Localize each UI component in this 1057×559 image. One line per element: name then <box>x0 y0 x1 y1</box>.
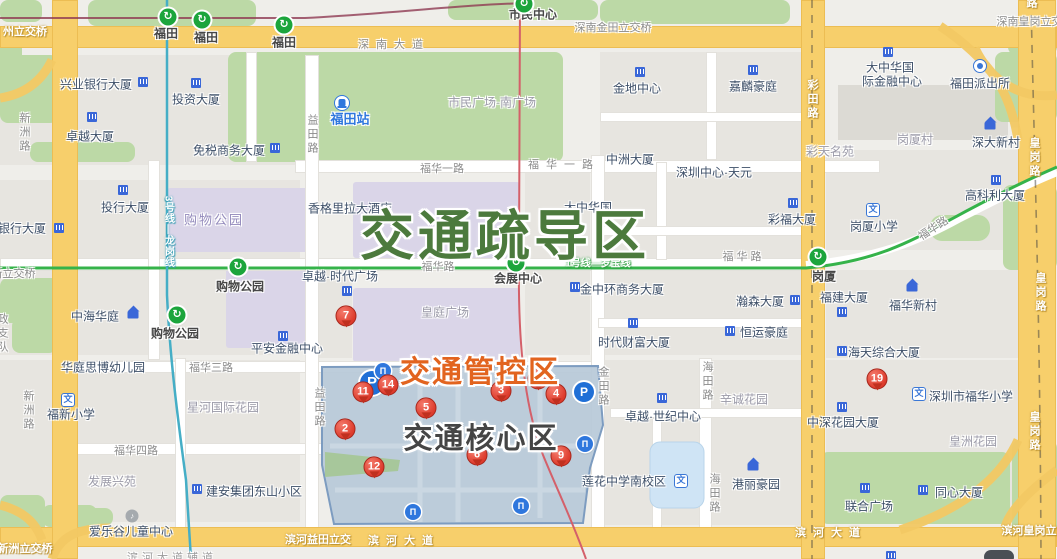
building-icon <box>860 483 870 493</box>
map-pin-7[interactable]: 7 <box>336 305 357 326</box>
vehicle-icon <box>984 550 1014 559</box>
parking-icon[interactable]: P <box>574 382 594 402</box>
building-icon <box>837 346 847 356</box>
house-icon <box>748 464 759 471</box>
school-icon: 文 <box>866 203 880 217</box>
building-icon <box>270 143 280 153</box>
metro-station-icon[interactable]: ↻ <box>230 259 247 276</box>
map-pin-12[interactable]: 12 <box>364 456 385 477</box>
metro-entrance-icon[interactable]: П <box>405 504 421 520</box>
metro-entrance-icon[interactable]: П <box>513 498 529 514</box>
building-icon <box>883 47 893 57</box>
misc-poi-icon: ♪ <box>126 510 139 523</box>
building-icon <box>54 223 64 233</box>
building-icon <box>635 67 645 77</box>
building-icon <box>570 282 580 292</box>
building-icon <box>342 286 352 296</box>
house-icon <box>985 123 996 130</box>
map-pin-19[interactable]: 19 <box>867 368 888 389</box>
building-icon <box>886 551 896 559</box>
zone-label-traffic-control: 交通管控区 <box>400 347 560 391</box>
building-icon <box>837 402 847 412</box>
building-icon <box>748 65 758 75</box>
map-canvas[interactable]: 兴业银行大厦投资大厦卓越大厦免税商务大厦投行大厦银行大厦中海华庭平安金融中心香格… <box>0 0 1057 559</box>
map-pin-2[interactable]: 2 <box>335 418 356 439</box>
house-icon <box>907 285 918 292</box>
school-icon: 文 <box>674 474 688 488</box>
metro-station-icon[interactable]: ↻ <box>194 12 211 29</box>
building-icon <box>837 307 847 317</box>
metro-entrance-icon[interactable]: П <box>577 436 593 452</box>
school-icon: 文 <box>61 393 75 407</box>
building-icon <box>725 326 735 336</box>
building-icon <box>87 112 97 122</box>
house-icon <box>128 312 139 319</box>
building-icon <box>657 393 667 403</box>
metro-station-icon[interactable]: ↻ <box>276 17 293 34</box>
zone-label-traffic-diversion: 交通疏导区 <box>360 192 650 271</box>
school-icon: 文 <box>912 387 926 401</box>
building-icon <box>790 295 800 305</box>
building-icon <box>918 485 928 495</box>
building-icon <box>192 484 202 494</box>
building-icon <box>118 185 128 195</box>
building-icon <box>788 198 798 208</box>
building-icon <box>628 318 638 328</box>
railway-station-icon <box>334 95 350 111</box>
map-pin-11[interactable]: 11 <box>353 381 374 402</box>
metro-station-icon[interactable]: ↻ <box>810 249 827 266</box>
police-icon <box>973 59 987 73</box>
metro-station-icon[interactable]: ↻ <box>160 9 177 26</box>
building-icon <box>138 77 148 87</box>
building-icon <box>278 331 288 341</box>
building-icon <box>991 175 1001 185</box>
zone-label-traffic-core: 交通核心区 <box>403 415 558 457</box>
building-icon <box>191 78 201 88</box>
map-pin-14[interactable]: 14 <box>378 374 399 395</box>
pins-layer: PPПППП71114253104126919 <box>0 0 1057 559</box>
metro-station-icon[interactable]: ↻ <box>169 307 186 324</box>
